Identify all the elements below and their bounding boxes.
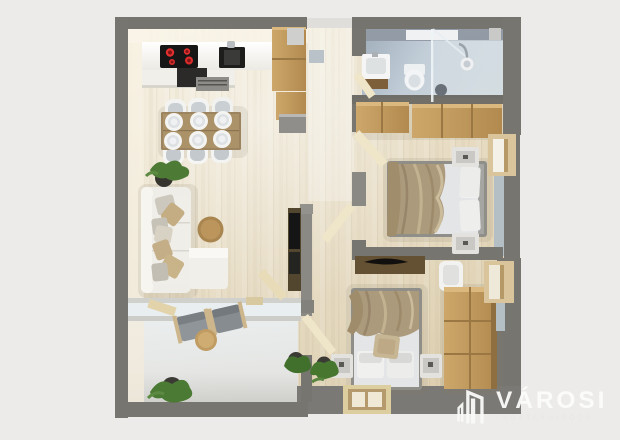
svg-text:VÁROSI: VÁROSI <box>496 386 607 414</box>
svg-text:INGATLANIRODA: INGATLANIRODA <box>497 415 594 422</box>
